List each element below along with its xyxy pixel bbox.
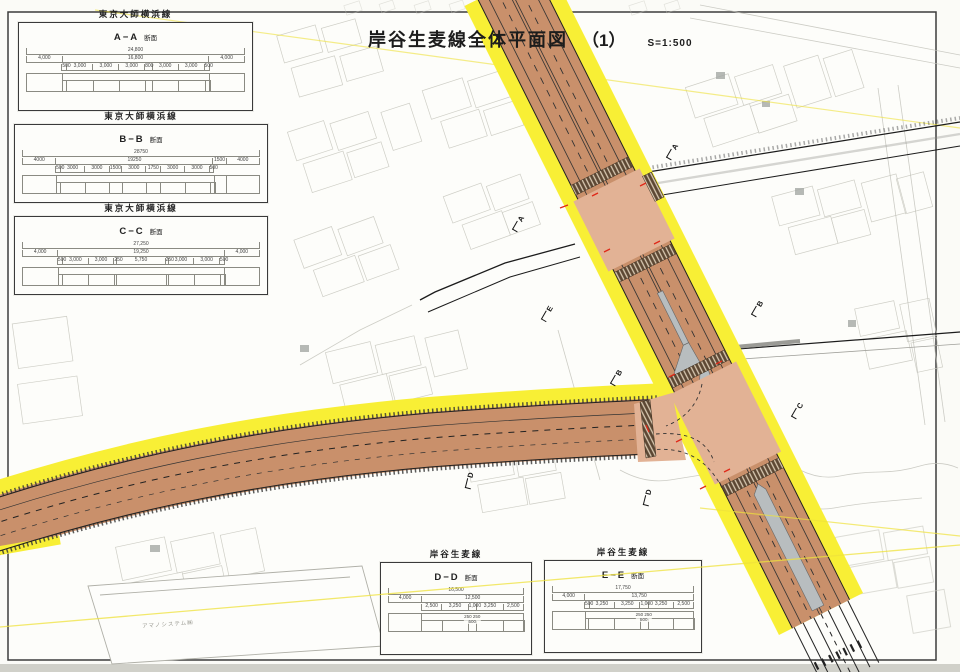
dimension-value: 4,000 — [388, 596, 422, 602]
dimension-value: 4,000 — [225, 250, 260, 256]
dimension-value: 3,250 — [649, 602, 674, 608]
section-box-AA: 東京大師横浜線 A−A断面 24,8004,00016,8004,0005003… — [18, 8, 253, 111]
dimension-value: 1500 — [110, 166, 123, 172]
dimension-value: 3,250 — [615, 602, 640, 608]
section-suffix: 断面 — [150, 229, 163, 236]
dimension-value: 5,750 — [117, 258, 165, 264]
dimension-value: 3,250 — [477, 604, 503, 610]
section-code: A−A — [114, 32, 139, 43]
dimension-value: 12,500 — [422, 596, 524, 602]
dimension-value: 3,000 — [194, 258, 220, 264]
dimension-value: 3000 — [61, 166, 85, 172]
dimension-value: 3,000 — [153, 64, 179, 70]
road-name-label: 岸谷生麦線 — [544, 546, 702, 558]
sheet-number: （1） — [582, 26, 625, 51]
section-suffix: 断面 — [631, 573, 644, 580]
dimension-value: 500 — [205, 64, 210, 70]
dimension-value: 1,000 — [640, 602, 648, 608]
dimension-value: 4,000 — [22, 250, 58, 256]
dimension-value: 28750 — [22, 150, 260, 156]
road-name-label: 岸谷生麦線 — [380, 548, 532, 560]
cross-section-profile: 250 250500 — [552, 611, 694, 630]
dimension-value: 19,250 — [58, 250, 224, 256]
dimension-value: 3,000 — [119, 64, 145, 70]
dimension-value: 800 — [145, 64, 153, 70]
section-box-EE: 岸谷生麦線 E−E断面 17,7504,00013,7505003,2503,2… — [544, 546, 702, 653]
dimension-diagram: 16,5004,00012,5002,5003,2501,0003,2502,5… — [388, 588, 524, 632]
dimension-value: 4000 — [227, 158, 260, 164]
dimension-diagram: 17,7504,00013,7505003,2503,2501,0003,250… — [552, 586, 694, 630]
road-name-label: 東京大師横浜線 — [18, 8, 253, 20]
section-code: B−B — [119, 134, 144, 145]
dimension-value: 4000 — [22, 158, 56, 164]
dimension-value: 24,800 — [26, 48, 245, 54]
section-code: E−E — [602, 570, 626, 581]
dimension-value: 16,800 — [63, 56, 210, 62]
dimension-value: 3,000 — [93, 64, 119, 70]
dimension-value: 3,000 — [67, 64, 93, 70]
dimension-value: 27,250 — [22, 242, 260, 248]
dimension-value: 3,250 — [590, 602, 615, 608]
dimension-value: 4,000 — [209, 56, 245, 62]
section-code: D−D — [434, 572, 459, 583]
dimension-value: 3000 — [161, 166, 185, 172]
dimension-diagram: 24,8004,00016,8004,0005003,0003,0003,000… — [26, 48, 245, 92]
cross-section-profile — [22, 175, 260, 194]
dimension-value: 4,000 — [26, 56, 63, 62]
scale-label: S=1:500 — [647, 38, 692, 49]
dimension-value: 17,750 — [552, 586, 694, 592]
cross-section-profile — [26, 73, 245, 92]
dimension-value: 3000 — [185, 166, 209, 172]
dimension-value: 3,000 — [89, 258, 115, 264]
section-box-DD: 岸谷生麦線 D−D断面 16,5004,00012,5002,5003,2501… — [380, 548, 532, 655]
dimension-value: 1,000 — [469, 604, 478, 610]
plan-drawing-page: 岸谷生麦線全体平面図 （1） S=1:500 東京大師横浜線 A−A断面 24,… — [0, 0, 960, 672]
dimension-value: 3,000 — [63, 258, 89, 264]
dimension-value: 16,500 — [388, 588, 524, 594]
dimension-value: 500 — [220, 258, 225, 264]
drawing-title-block: 岸谷生麦線全体平面図 （1） S=1:500 — [368, 26, 693, 52]
road-name-label: 東京大師横浜線 — [14, 110, 268, 122]
cross-section-profile — [22, 267, 260, 286]
road-name-label: 東京大師横浜線 — [14, 202, 268, 214]
dimension-value: 1500 — [213, 158, 226, 164]
dimension-diagram: 27,2504,00019,2504,0005003,0003,0002505,… — [22, 242, 260, 286]
dimension-value: 2,500 — [674, 602, 694, 608]
cross-section-profile: 250 250500 — [388, 613, 524, 632]
dimension-value: 3,000 — [179, 64, 205, 70]
median-sub-dimensions: 250 250500 — [464, 614, 480, 624]
median-sub-dimensions: 250 250500 — [636, 612, 652, 622]
dimension-value: 1750 — [146, 166, 161, 172]
dimension-value: 4,000 — [552, 594, 585, 600]
dimension-value: 3000 — [85, 166, 109, 172]
section-suffix: 断面 — [150, 137, 163, 144]
dimension-value: 3000 — [122, 166, 146, 172]
drawing-title: 岸谷生麦線全体平面図 — [368, 26, 568, 52]
dimension-value: 13,750 — [585, 594, 694, 600]
dimension-value: 500 — [210, 166, 215, 172]
dimension-value: 2,500 — [421, 604, 442, 610]
section-box-BB: 東京大師横浜線 B−B断面 28750400019250150040005003… — [14, 110, 268, 203]
dimension-value: 3,250 — [442, 604, 468, 610]
dimension-value: 2,500 — [504, 604, 524, 610]
dimension-diagram: 2875040001925015004000500300030001500300… — [22, 150, 260, 194]
section-code: C−C — [119, 226, 144, 237]
dimension-value: 3,000 — [169, 258, 195, 264]
section-box-CC: 東京大師横浜線 C−C断面 27,2504,00019,2504,0005003… — [14, 202, 268, 295]
dimension-value: 19250 — [56, 158, 213, 164]
section-suffix: 断面 — [465, 575, 478, 582]
section-suffix: 断面 — [144, 35, 157, 42]
